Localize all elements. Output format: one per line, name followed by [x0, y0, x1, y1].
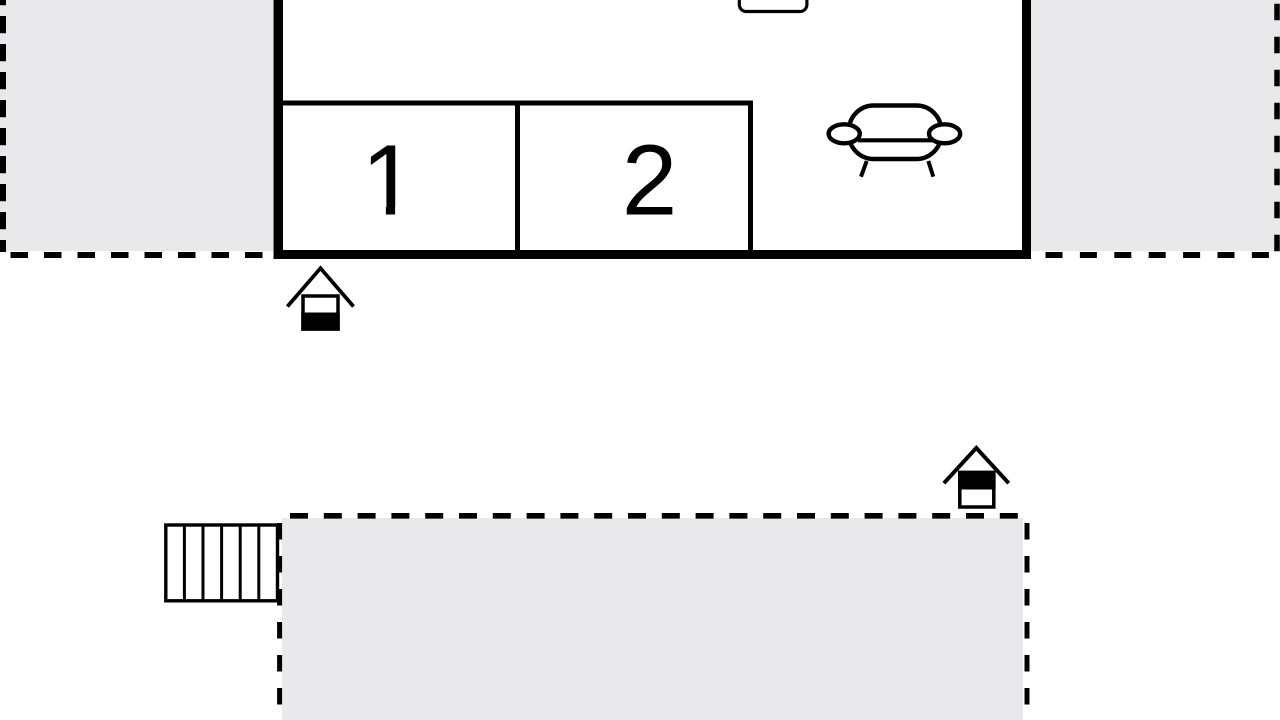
svg-text:1: 1: [361, 125, 417, 237]
svg-text:2: 2: [622, 125, 678, 237]
